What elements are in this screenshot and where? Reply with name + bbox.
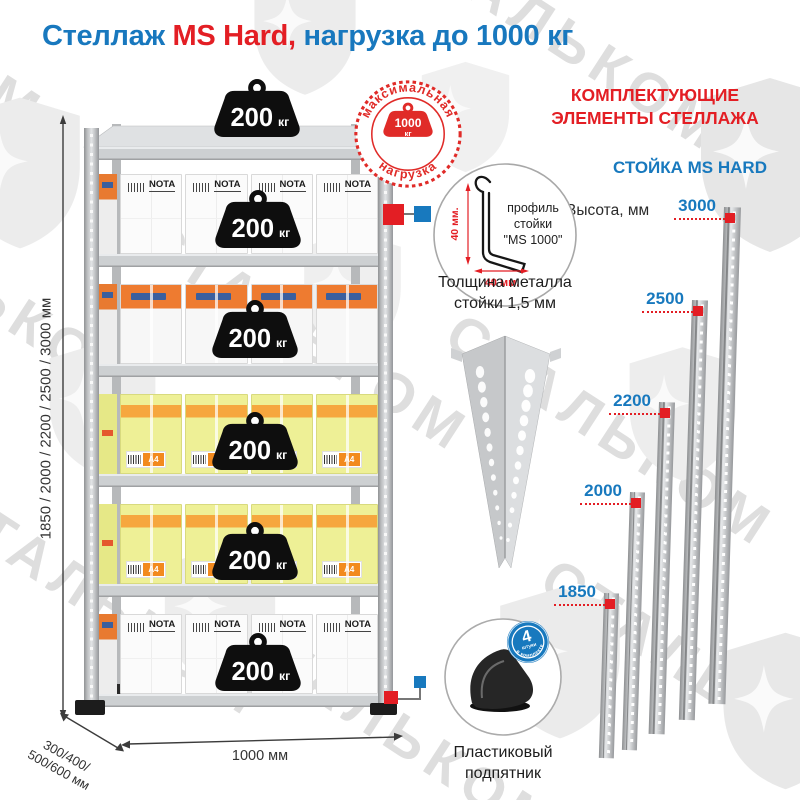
pack-label: A4	[126, 561, 166, 578]
stand-post-leader-dots	[609, 413, 660, 415]
max-load-stamp: максимальная нагрузка 1000 кг	[352, 78, 464, 195]
title-part-blue: Стеллаж	[42, 20, 172, 52]
box-side-end	[99, 504, 117, 584]
yellow-paper-pack: A4	[120, 394, 182, 474]
box-side-end	[99, 174, 117, 254]
barcode	[128, 623, 144, 632]
load-weight-badge: 200кг	[199, 632, 317, 695]
barcode	[324, 565, 337, 574]
stand-post-leader-dots	[554, 604, 605, 606]
stand-post-height-label: 2000	[574, 481, 622, 501]
front-post	[84, 128, 99, 705]
stand-post-height-label: 2200	[603, 391, 651, 411]
note-line2: стойки 1,5 мм	[430, 293, 580, 314]
load-weight-badge: 200кг	[196, 411, 314, 474]
load-value: 200	[228, 547, 271, 575]
depth-dimension-line	[60, 713, 124, 752]
paper-size-label: A4	[143, 563, 164, 576]
load-unit: кг	[276, 448, 287, 462]
stand-post-height-label: 2500	[636, 289, 684, 309]
box-brand-label: NOTA	[214, 619, 240, 632]
side-label-chip	[102, 622, 113, 628]
stand-post-height-label: 3000	[668, 196, 716, 216]
rack-foot	[75, 700, 105, 715]
metal-thickness-note: Толщина металла стойки 1,5 мм	[430, 272, 580, 314]
box-side-end	[99, 614, 117, 694]
stand-post-marker	[725, 213, 735, 223]
box-label-strip	[326, 293, 361, 300]
corner-post-image	[438, 330, 572, 582]
nota-paper-box: NOTA	[120, 174, 182, 254]
load-unit: кг	[279, 669, 290, 683]
note-line1: Толщина металла	[430, 272, 580, 293]
barcode	[324, 455, 337, 464]
connector-red-square	[383, 204, 404, 225]
profile-caption: "MS 1000"	[504, 233, 563, 247]
page-title: Стеллаж MS Hard, нагрузка до 1000 кг	[42, 20, 573, 53]
infographic-page: СТАЛЬКОМСТАЛЬКОМСТАЛЬКОМСТАЛЬКОМСТАЛЬКОМ…	[0, 0, 800, 800]
yellow-paper-pack: A4	[120, 504, 182, 584]
side-label-chip	[102, 540, 113, 546]
stand-post-marker	[693, 306, 703, 316]
load-value: 200	[230, 104, 273, 132]
stand-post-marker	[631, 498, 641, 508]
load-unit: кг	[279, 226, 290, 240]
stand-heading: СТОЙКА MS HARD	[570, 158, 800, 178]
load-value: 200	[231, 215, 274, 243]
box-brand-label: NOTA	[149, 619, 175, 632]
stand-post-leader-dots	[674, 218, 725, 220]
connector-red-square	[384, 691, 398, 704]
pack-label: A4	[322, 451, 362, 468]
pack-label: A4	[322, 561, 362, 578]
side-label-chip	[102, 182, 113, 188]
title-part-blue2: нагрузка до 1000 кг	[296, 20, 573, 52]
components-heading-line1: КОМПЛЕКТУЮЩИЕ	[530, 84, 780, 107]
barcode	[128, 565, 141, 574]
box-label-strip	[131, 293, 166, 300]
load-value: 200	[231, 658, 274, 686]
paper-size-label: A4	[143, 453, 164, 466]
components-heading-line2: ЭЛЕМЕНТЫ СТЕЛЛАЖА	[530, 107, 780, 130]
box-side-end	[99, 284, 117, 364]
load-weight-badge: 200кг	[196, 299, 314, 362]
barcode	[259, 623, 275, 632]
side-label-chip	[102, 292, 113, 298]
barcode	[324, 183, 340, 192]
box-side-end	[99, 394, 117, 474]
side-label-chip	[102, 430, 113, 436]
barcode	[324, 623, 340, 632]
stand-post-height-label: 1850	[548, 582, 596, 602]
load-weight-badge: 200кг	[198, 78, 316, 141]
stand-post-leader-dots	[580, 503, 631, 505]
stand-post-marker	[605, 599, 615, 609]
components-heading: КОМПЛЕКТУЮЩИЕ ЭЛЕМЕНТЫ СТЕЛЛАЖА	[530, 84, 780, 129]
load-weight-badge: 200кг	[196, 521, 314, 584]
profile-dim-vertical: 40 мм.	[449, 207, 461, 240]
barcode	[128, 183, 144, 192]
paper-size-label: A4	[339, 563, 360, 576]
load-weight-badge: 200кг	[199, 189, 317, 252]
pack-label: A4	[126, 451, 166, 468]
barcode	[128, 455, 141, 464]
nota-paper-box: NOTA	[316, 614, 378, 694]
stand-post-marker	[660, 408, 670, 418]
width-dimension-line	[121, 733, 403, 749]
orange-top-paper-box	[120, 284, 182, 364]
yellow-paper-pack: A4	[316, 394, 378, 474]
title-part-red: MS Hard,	[172, 20, 295, 52]
rack-foot	[370, 703, 397, 715]
foot-caption-line2: подпятник	[428, 763, 578, 784]
load-value: 200	[228, 325, 271, 353]
load-unit: кг	[276, 336, 287, 350]
orange-top-paper-box	[316, 284, 378, 364]
profile-caption: стойки	[514, 217, 552, 231]
profile-caption: профиль	[507, 201, 559, 215]
paper-size-label: A4	[339, 453, 360, 466]
stamp-load-unit: кг	[404, 129, 411, 138]
foot-caption-line1: Пластиковый	[428, 742, 578, 763]
box-brand-label: NOTA	[345, 619, 371, 632]
connector-blue-square	[414, 676, 426, 688]
box-brand-label: NOTA	[149, 179, 175, 192]
width-dimension-label: 1000 мм	[180, 748, 340, 764]
barcode	[193, 623, 209, 632]
load-unit: кг	[278, 115, 289, 129]
load-unit: кг	[276, 558, 287, 572]
height-dimension-label: 1850 / 2000 / 2200 / 2500 / 3000 мм	[38, 139, 55, 699]
yellow-paper-pack: A4	[316, 504, 378, 584]
load-value: 200	[228, 437, 271, 465]
connector-blue-square	[414, 206, 431, 222]
box-brand-label: NOTA	[280, 619, 306, 632]
nota-paper-box: NOTA	[120, 614, 182, 694]
plastic-foot-caption: Пластиковый подпятник	[428, 742, 578, 784]
connector-line	[398, 698, 421, 700]
stand-post-leader-dots	[642, 311, 693, 313]
